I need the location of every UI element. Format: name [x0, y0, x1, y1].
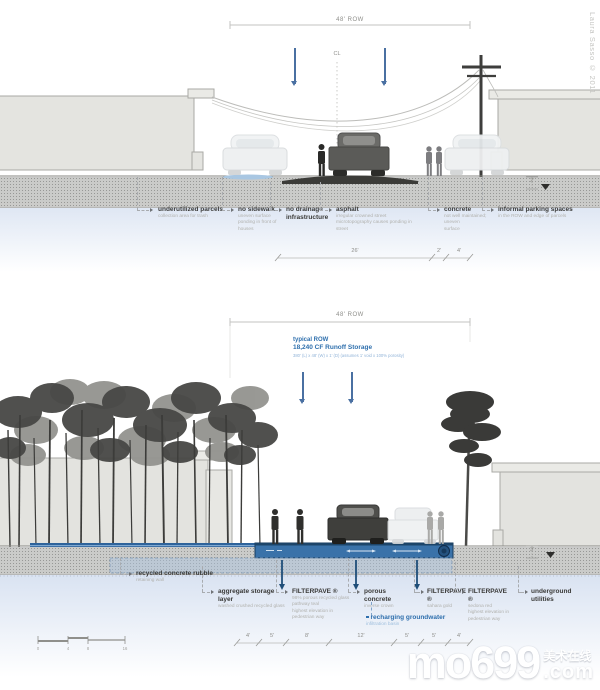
callout-title: informal parking spaces	[498, 206, 588, 214]
callout-informal-parking: informal parking spaces in the ROW and e…	[498, 206, 588, 220]
callout-sub: not well maintained; uneven	[444, 214, 490, 226]
asphalt-road	[282, 176, 418, 185]
leader-line	[276, 592, 284, 593]
centerline-label: CL	[328, 52, 346, 58]
storage-subnote: 380' (L) x 48' (W) x 1' (D) (assumes 1' …	[293, 353, 483, 359]
callout-sub: in the ROW and edge of parcels	[498, 214, 588, 220]
callout-title: no drainage infrastructure	[286, 206, 330, 222]
grade-marker-icon	[541, 184, 550, 190]
callout-sub: highest elevation in pedestrian way	[468, 610, 512, 622]
callout-sub: ponding in front of houses	[238, 220, 282, 232]
credit-text: Laura Sasso © 2011	[588, 12, 597, 94]
pickup-truck-existing	[329, 133, 389, 176]
pickup-truck-proposed	[328, 505, 388, 544]
leader-line	[202, 592, 210, 593]
depth-dimension-label-existing: 2'	[527, 179, 537, 185]
street-width-4: 4'	[451, 249, 467, 255]
callout-title: underground utilities	[531, 588, 595, 604]
ponding-puddle	[223, 175, 273, 180]
leader-line	[320, 182, 321, 210]
runoff-arrow-icon	[294, 48, 296, 84]
scale-bar	[38, 636, 125, 644]
drawing-canvas: 48' ROW CL 2' 26' 2' 4' underutilized pa…	[0, 0, 600, 690]
callout-asphalt: asphalt irregular crowned street microto…	[336, 206, 422, 233]
callout-title: aggregate storage layer	[218, 588, 288, 604]
callout-sub: microtopography causes ponding in street	[336, 220, 422, 232]
pedestrian-figure	[318, 144, 325, 176]
leader-line	[482, 210, 490, 211]
leader-line	[348, 592, 356, 593]
leader-line	[276, 560, 277, 592]
water-storage-line	[30, 543, 256, 547]
leader-arrow-icon	[211, 590, 216, 594]
leader-line	[455, 592, 461, 593]
callout-recycled-rubble: recycled concrete rubble retaining wall	[136, 570, 226, 584]
runoff-arrow-icon	[384, 48, 386, 84]
leader-arrow-icon	[357, 590, 362, 594]
leader-line	[428, 210, 436, 211]
callout-filterpave-red: FILTERPAVE ® sedona red highest elevatio…	[468, 588, 512, 623]
callout-no-drainage: no drainage infrastructure	[286, 206, 330, 222]
leader-arrow-icon	[525, 590, 530, 594]
storage-title: typical ROW	[293, 336, 483, 344]
leader-arrow-icon	[462, 590, 467, 594]
callout-title: recycled concrete rubble	[136, 570, 226, 578]
callout-sub: infiltration basin	[366, 622, 456, 628]
leader-arrow-icon	[285, 590, 290, 594]
leader-arrow-icon	[421, 590, 426, 594]
street-dimension-line-existing	[275, 254, 473, 261]
leader-line	[137, 210, 149, 211]
bullet-icon	[366, 616, 369, 619]
storage-value: 18,240 CF Runoff Storage	[293, 344, 483, 353]
porous-street-band	[255, 543, 453, 558]
watermark: mo699 美术在线 .com	[407, 644, 594, 682]
dim-8: 8'	[297, 634, 317, 640]
leader-arrow-icon	[279, 208, 284, 212]
scale-tick-16: 16	[120, 646, 130, 651]
leader-line	[455, 562, 456, 592]
callout-sub: sahara gold	[427, 604, 471, 610]
leader-arrow-icon	[231, 208, 236, 212]
runoff-storage-note: typical ROW 18,240 CF Runoff Storage 380…	[293, 336, 483, 359]
leader-arrow-icon	[150, 208, 155, 212]
scale-tick-4: 4	[63, 646, 73, 651]
ghost-car-right	[445, 135, 509, 175]
row-dimension-proposed: 48' ROW	[230, 312, 470, 318]
leader-line	[137, 177, 138, 210]
callout-title: FILTERPAVE ®	[292, 588, 354, 596]
depth-dimension-label-proposed: 3'	[527, 548, 537, 554]
leader-line	[222, 177, 223, 210]
callout-sub: highest elevation in pedestrian way	[292, 609, 354, 621]
leader-line	[270, 182, 271, 210]
leader-arrow-icon	[129, 572, 134, 576]
runoff-arrow-icon	[351, 372, 353, 402]
callout-sub: collection area for trash	[158, 214, 236, 220]
leader-line	[202, 566, 203, 592]
building-right-proposed	[492, 463, 600, 546]
leader-line	[414, 560, 415, 592]
watermark-brand: mo699	[407, 644, 540, 682]
power-lines	[212, 70, 498, 131]
leader-line	[120, 558, 121, 574]
leader-line	[518, 566, 519, 592]
pedestrian-pair-existing	[426, 146, 442, 176]
callout-sub: retaining wall	[136, 578, 226, 584]
scale-tick-8: 8	[83, 646, 93, 651]
callout-sub: washed crushed recycled glass	[218, 604, 288, 610]
callout-title: recharging groundwater	[366, 614, 456, 622]
leader-line	[518, 592, 524, 593]
runoff-arrow-icon	[302, 372, 304, 402]
leader-line	[348, 558, 349, 592]
watermark-tld: .com	[543, 662, 594, 682]
groundwater-label: recharging groundwater	[371, 614, 446, 621]
leader-line	[428, 177, 429, 210]
leader-line	[414, 592, 420, 593]
leader-arrow-icon	[491, 208, 496, 212]
callout-recharging-groundwater: recharging groundwater infiltration basi…	[366, 614, 456, 628]
scale-tick-0: 0	[33, 646, 43, 651]
callout-title: asphalt	[336, 206, 422, 214]
callout-filterpave-teal: FILTERPAVE ® 98% porous recycled glass p…	[292, 588, 354, 621]
street-width-2: 2'	[432, 249, 446, 255]
street-width-26: 26'	[340, 249, 370, 255]
dim-5a: 5'	[262, 634, 282, 640]
dim-12: 12'	[351, 634, 371, 640]
leader-line	[320, 210, 328, 211]
leader-line	[222, 210, 230, 211]
leader-line	[482, 177, 483, 210]
callout-underground-utilities: underground utilities	[531, 588, 595, 604]
leader-arrow-icon	[329, 208, 334, 212]
leader-arrow-icon	[437, 208, 442, 212]
leader-line	[270, 210, 278, 211]
ghost-car-left	[223, 135, 287, 175]
callout-sub: surface	[444, 227, 490, 233]
dim-4a: 4'	[238, 634, 258, 640]
row-dimension-existing: 48' ROW	[230, 17, 470, 23]
grade-marker-icon	[546, 552, 555, 558]
callout-title: FILTERPAVE ®	[468, 588, 512, 604]
pedestrian-pair-proposed	[272, 509, 304, 544]
leader-line	[120, 574, 128, 575]
building-left-existing	[0, 89, 214, 170]
callout-underutilized-parcels: underutilized parcels collection area fo…	[158, 206, 236, 220]
